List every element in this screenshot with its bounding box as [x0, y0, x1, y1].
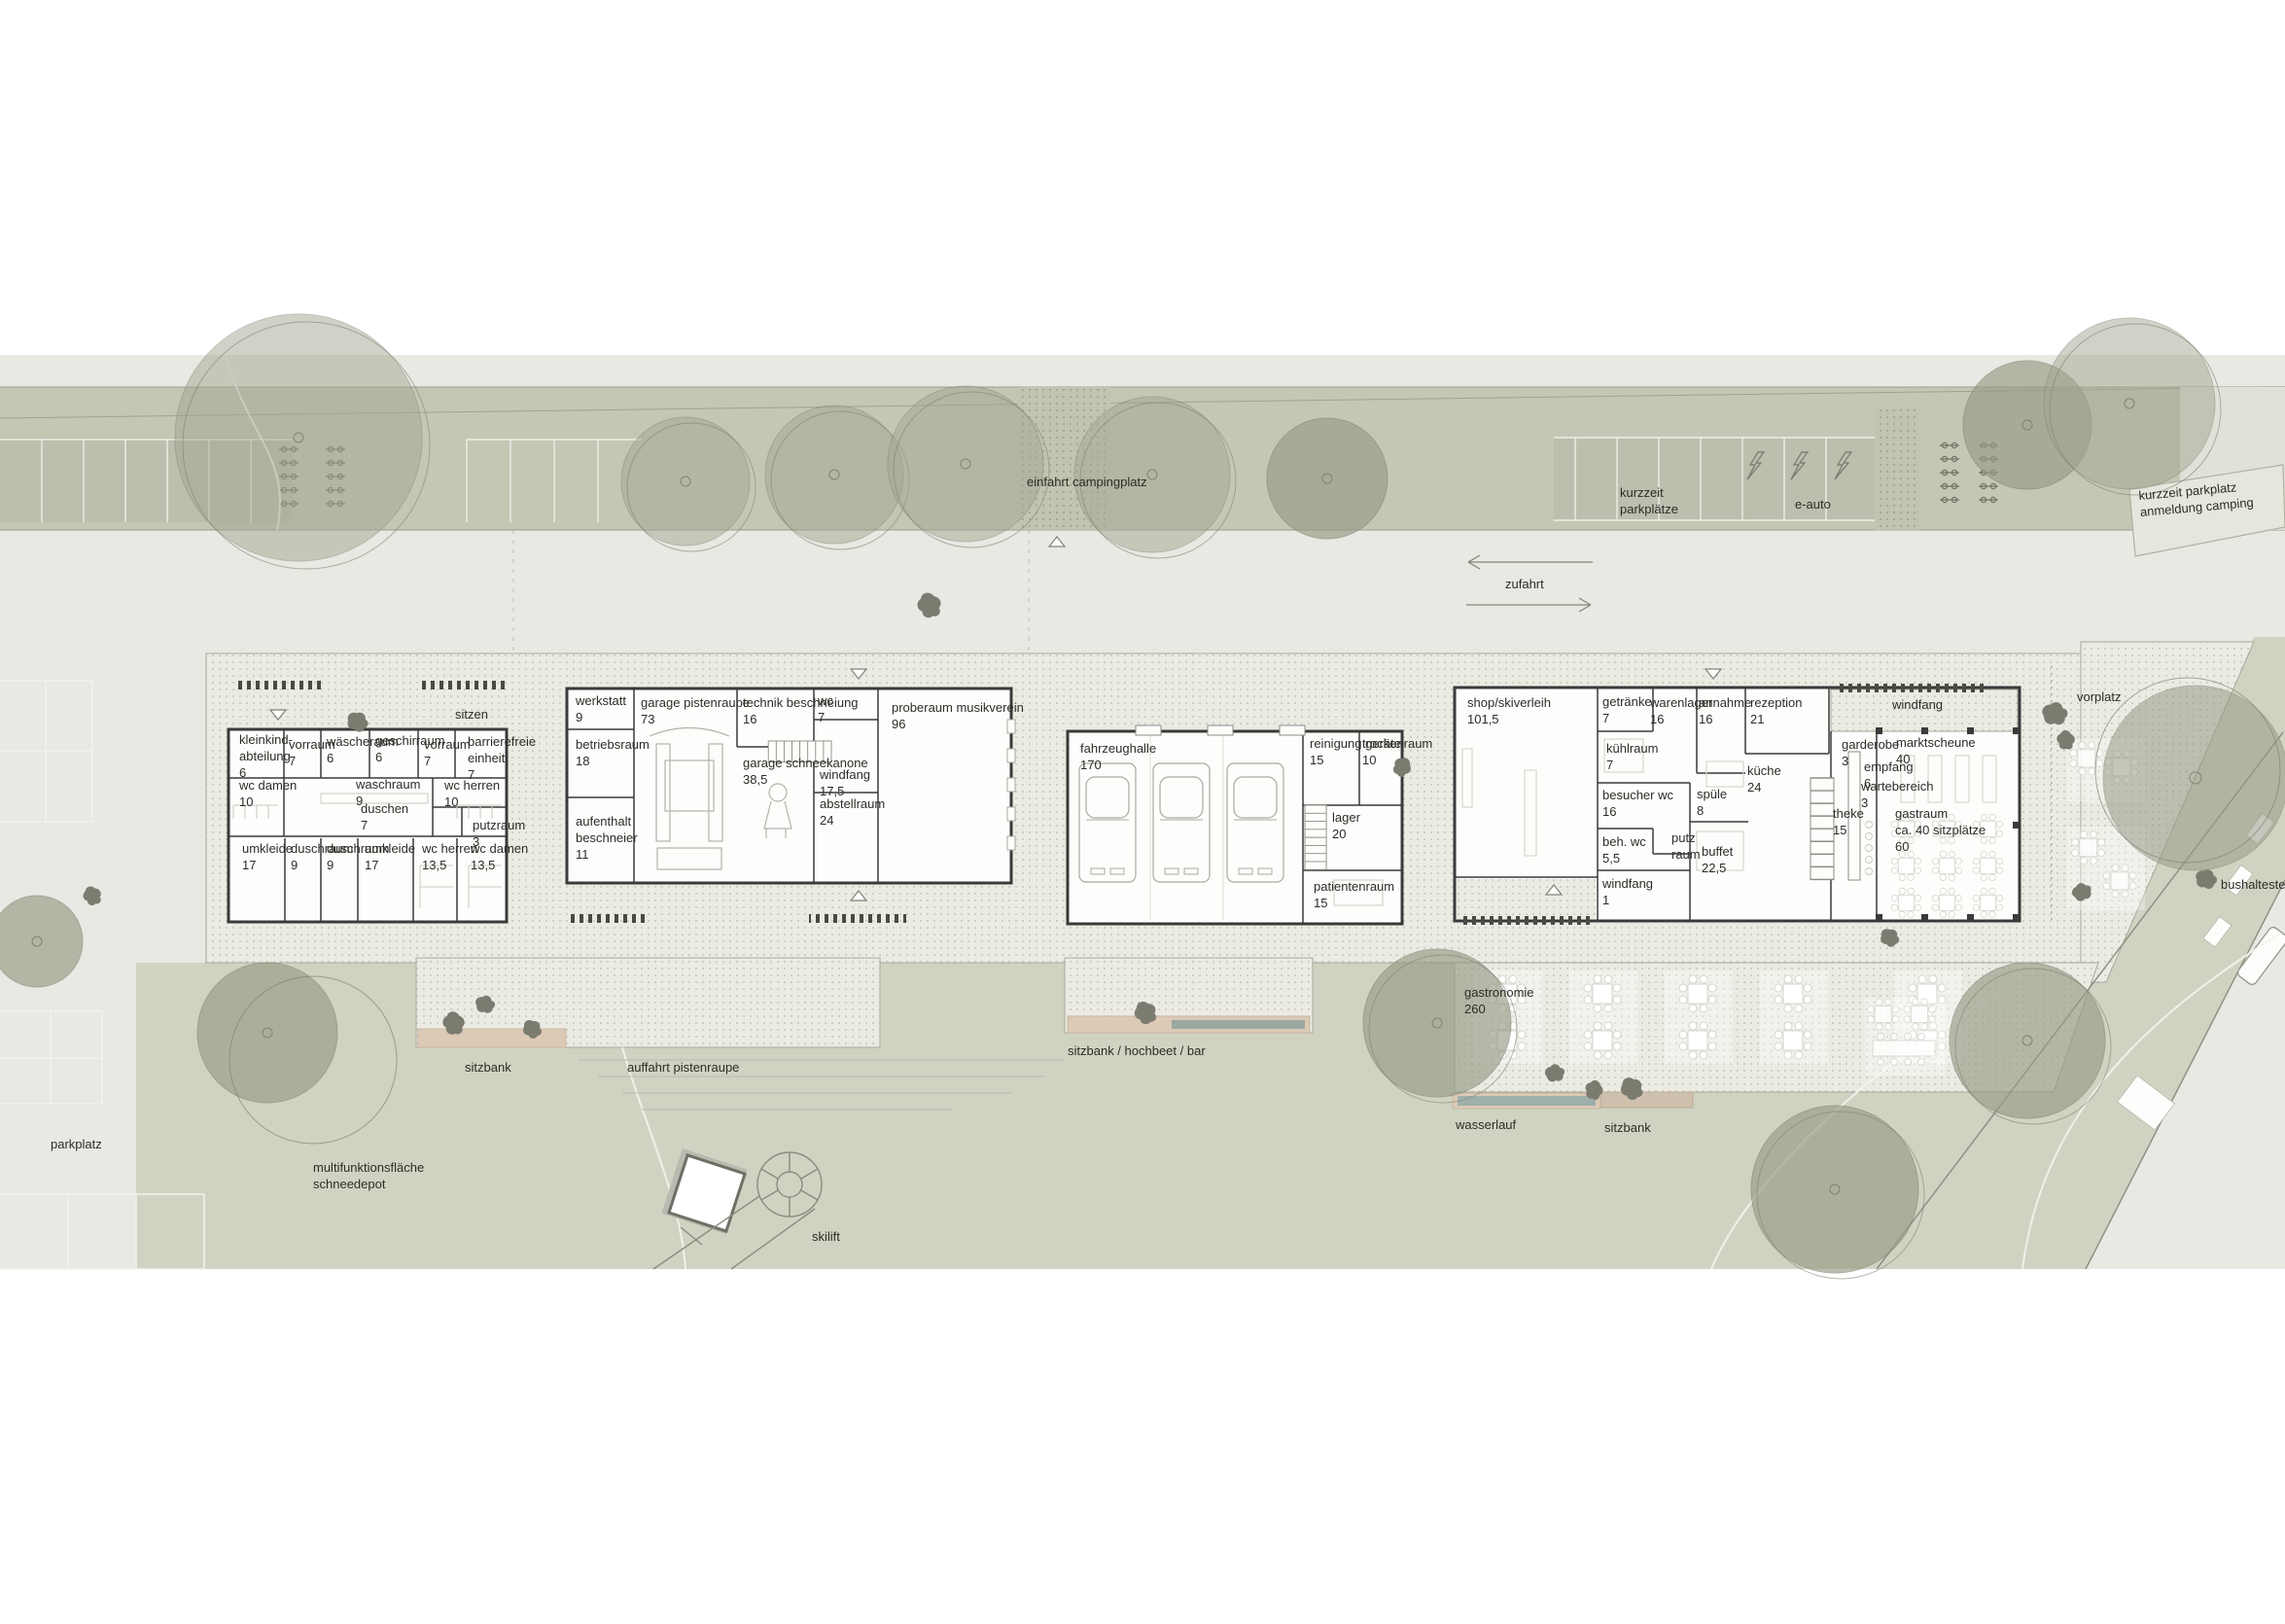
- label-parkplatz: parkplatz: [51, 1136, 102, 1152]
- room-trockenraum: trockenraum10: [1362, 735, 1432, 768]
- room-rezeption: rezeption21: [1750, 694, 1802, 727]
- label-vorplatz: vorplatz: [2077, 688, 2122, 705]
- label-kurzzeit-parkplaetze: kurzzeitparkplätze: [1620, 484, 1678, 517]
- room-wc-damen-1: wc damen10: [239, 777, 297, 810]
- label-skilift: skilift: [812, 1228, 840, 1245]
- room-getraenke: getränke7: [1602, 693, 1652, 726]
- room-betriebsraum: betriebsraum18: [576, 736, 650, 769]
- room-abstellraum: abstellraum24: [820, 795, 885, 829]
- room-garage-pistenraupe: garage pistenraupe73: [641, 694, 750, 727]
- room-lager: lager20: [1332, 809, 1360, 842]
- label-sitzbank-ost: sitzbank: [1604, 1119, 1651, 1136]
- room-umkleide-2: umkleide17: [365, 840, 415, 873]
- room-theke: theke15: [1833, 805, 1864, 838]
- room-gastraum: gastraumca. 40 sitzplätze60: [1895, 805, 1986, 855]
- label-zufahrt: zufahrt: [1505, 576, 1544, 592]
- room-technik-beschneiung: technik beschneiung16: [743, 694, 859, 727]
- room-duschen: duschen7: [361, 800, 408, 833]
- room-windfang-b4-nord: windfang: [1892, 696, 1943, 713]
- room-beh-wc: beh. wc5,5: [1602, 833, 1646, 866]
- room-windfang-b4-sued: windfang1: [1602, 875, 1653, 908]
- room-wc: wc7: [818, 692, 833, 725]
- room-spuele: spüle8: [1697, 786, 1727, 819]
- room-vorraum-2: vorraum7: [424, 736, 471, 769]
- label-multifunktionsflaeche: multifunktionsflächeschneedepot: [313, 1159, 424, 1192]
- label-sitzbank-west: sitzbank: [465, 1059, 511, 1076]
- label-einfahrt-campingplatz: einfahrt campingplatz: [1027, 474, 1147, 490]
- room-fahrzeughalle: fahrzeughalle170: [1080, 740, 1156, 773]
- label-wasserlauf: wasserlauf: [1456, 1116, 1516, 1133]
- room-wc-damen-2: wc damen13,5: [471, 840, 528, 873]
- room-umkleide-1: umkleide17: [242, 840, 293, 873]
- label-gastronomie: gastronomie260: [1464, 984, 1534, 1017]
- room-besucher-wc: besucher wc16: [1602, 787, 1673, 820]
- paving-divider: [1875, 408, 1919, 530]
- label-sitzen: sitzen: [455, 706, 488, 723]
- room-buffet: buffet22,5: [1702, 843, 1733, 876]
- label-e-auto: e-auto: [1795, 496, 1831, 512]
- label-bushaltestelle: bushaltestelle: [2221, 876, 2285, 893]
- room-wc-herren-1: wc herren10: [444, 777, 500, 810]
- room-patientenraum: patientenraum15: [1314, 878, 1394, 911]
- room-putzraum-b4: putzraum: [1671, 830, 1701, 863]
- room-kleinkindabteilung: kleinkind-abteilung6: [239, 731, 293, 781]
- room-wc-herren-2: wc herren13,5: [422, 840, 477, 873]
- room-aufenthalt-beschneier: aufenthaltbeschneier11: [576, 813, 638, 863]
- room-kueche: küche24: [1747, 762, 1781, 795]
- room-shop-skiverleih: shop/skiverleih101,5: [1467, 694, 1551, 727]
- room-barrierefreie-einheit: barrierefreieeinheit7: [468, 733, 536, 783]
- label-sitzbank-hochbeet-bar: sitzbank / hochbeet / bar: [1068, 1042, 1206, 1059]
- label-auffahrt-pistenraupe: auffahrt pistenraupe: [627, 1059, 739, 1076]
- room-proberaum-musikverein: proberaum musikverein96: [892, 699, 1024, 732]
- room-kuehlraum: kühlraum7: [1606, 740, 1658, 773]
- room-werkstatt: werkstatt9: [576, 692, 626, 725]
- room-annahme: annahme16: [1699, 694, 1751, 727]
- site-plan-page: einfahrt campingplatz kurzzeitparkplätze…: [0, 0, 2285, 1624]
